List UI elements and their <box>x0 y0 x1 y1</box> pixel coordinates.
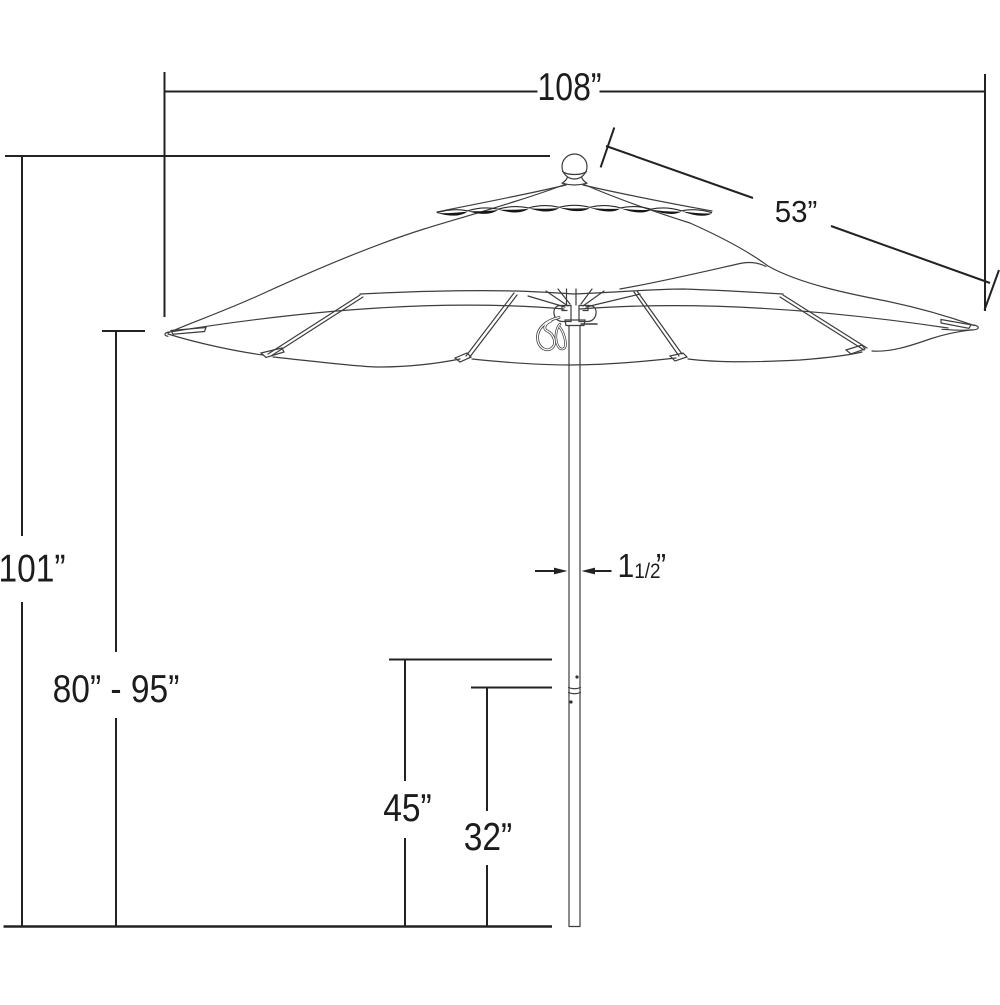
svg-text:32”: 32” <box>464 815 512 859</box>
svg-text:45”: 45” <box>383 786 431 830</box>
svg-text:108”: 108” <box>537 65 601 109</box>
svg-text:80” - 95”: 80” - 95” <box>53 667 180 711</box>
svg-text:101”: 101” <box>0 546 66 590</box>
svg-text:53”: 53” <box>775 195 818 229</box>
